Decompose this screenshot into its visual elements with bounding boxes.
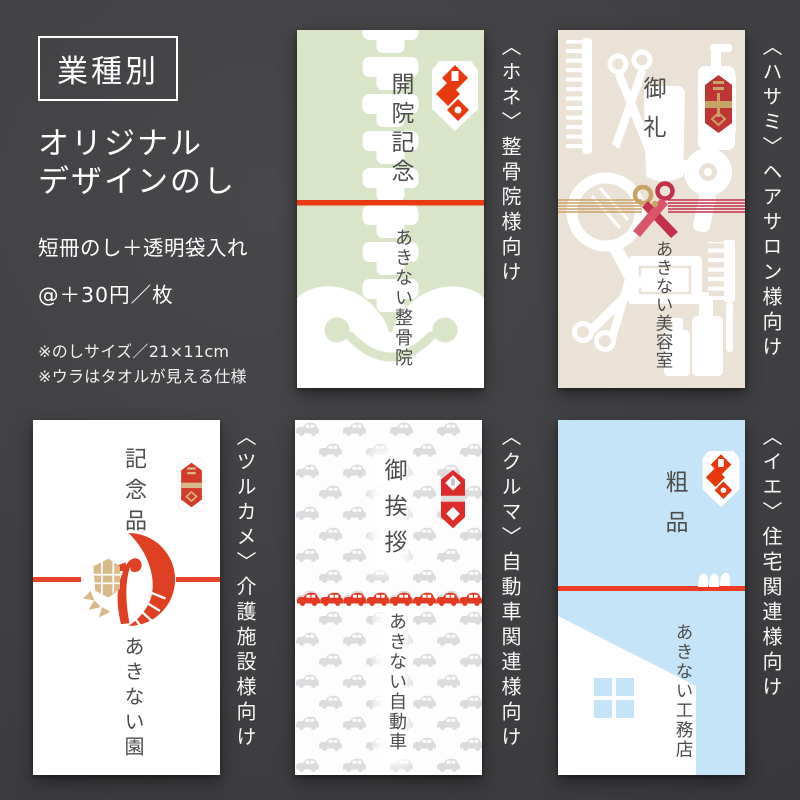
note-back: ※ウラはタオルが見える仕様	[38, 365, 290, 390]
unit-price: @＋30円／枚	[38, 278, 290, 308]
note-size: ※のしサイズ／21×11cm	[38, 340, 290, 365]
noshi-card-hone: 開院記念 あきない整骨院	[297, 30, 484, 388]
noshi-card-hasami: 御礼 あきない美容室	[558, 30, 745, 388]
card-title: 開院記念	[383, 72, 417, 188]
card-giver-name: あきない整骨院	[389, 228, 415, 368]
card-title: 御礼	[635, 76, 669, 154]
card-title: 御挨拶	[376, 458, 410, 566]
noshi-card-ie: 粗品 あきない工務店	[558, 420, 745, 775]
page-title: オリジナル デザインのし	[38, 125, 290, 201]
noshi-ornament-icon	[175, 458, 208, 512]
audience-label-ie: 〈イエ〉住宅関連様向け	[757, 426, 786, 701]
noshi-ornament-icon	[438, 470, 468, 530]
audience-label-tsurukame: 〈ツルカメ〉介護施設様向け	[231, 426, 260, 751]
card-giver-name: あきない美容室	[651, 240, 676, 370]
audience-label-hone: 〈ホネ〉整骨院様向け	[496, 36, 525, 286]
card-giver-name: あきない工務店	[671, 623, 696, 760]
noshi-card-kuruma: 御挨拶 あきない自動車	[295, 420, 482, 775]
page-title-line2: デザインのし	[38, 164, 236, 200]
noshi-card-tsurukame: 記念品 あきない園	[33, 420, 220, 775]
card-giver-name: あきない園	[119, 636, 148, 761]
product-type: 短冊のし＋透明袋入れ	[38, 231, 290, 261]
page-background: 業種別 オリジナル デザインのし 短冊のし＋透明袋入れ @＋30円／枚 ※のしサ…	[0, 0, 800, 800]
crane-turtle-circle-icon	[81, 532, 176, 627]
audience-label-kuruma: 〈クルマ〉自動車関連様向け	[496, 426, 525, 751]
page-title-line1: オリジナル	[38, 126, 203, 162]
noshi-ornament-icon	[430, 61, 480, 131]
notes: ※のしサイズ／21×11cm ※ウラはタオルが見える仕様	[38, 340, 290, 390]
noshi-ornament-icon	[701, 451, 741, 507]
card-giver-name: あきない自動車	[383, 612, 409, 752]
mizuhiki-line	[297, 200, 484, 206]
card-title: 記念品	[117, 447, 149, 540]
noshi-ornament-icon	[697, 69, 740, 139]
category-badge: 業種別	[38, 36, 178, 101]
audience-label-hasami: 〈ハサミ〉ヘアサロン様向け	[757, 36, 786, 361]
birds-on-wire-icon	[696, 571, 730, 588]
card-title: 粗品	[657, 470, 691, 550]
intro-panel: 業種別 オリジナル デザインのし 短冊のし＋透明袋入れ @＋30円／枚 ※のしサ…	[38, 36, 290, 390]
